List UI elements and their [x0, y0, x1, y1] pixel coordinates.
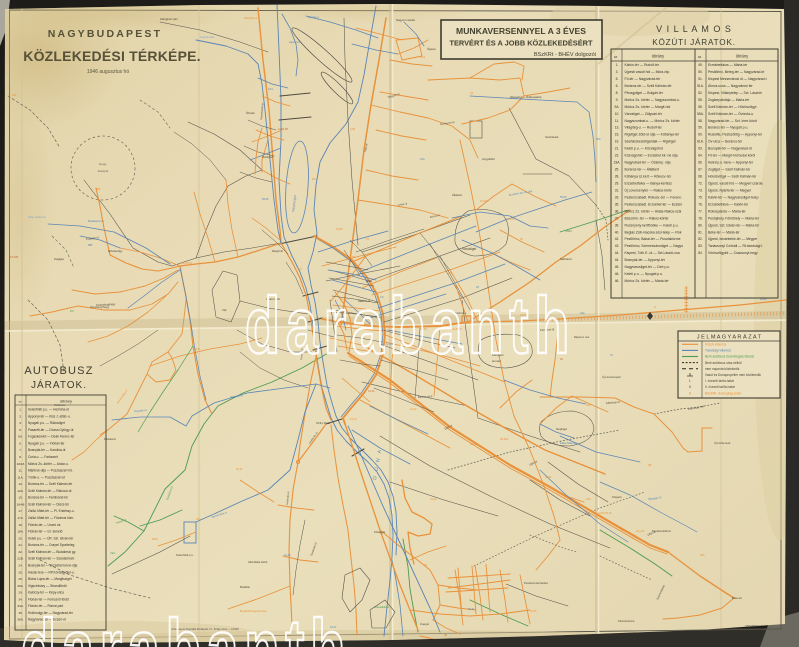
- svg-text:Új köztemető: Új köztemető: [714, 440, 731, 445]
- svg-text:25,25A: 25,25A: [480, 199, 488, 203]
- svg-text:Kálvin-tér — Rudolf-tér: Kálvin-tér — Rudolf-tér: [625, 63, 660, 67]
- svg-text:Vasút és Dunapropeller nem köz: Vasút és Dunapropeller nem közlekedik: [705, 373, 761, 377]
- svg-text:50A: 50A: [700, 553, 705, 557]
- svg-text:Flórián-tér — Izr. temető: Flórián-tér — Izr. temető: [28, 530, 63, 534]
- svg-text:Újpesti vasúti híd — Móra-rkp.: Újpesti vasúti híd — Móra-rkp.: [625, 69, 671, 74]
- svg-text:Kispest, Villanytelep — Szt. L: Kispest, Villanytelep — Szt. Lászlóh: [708, 91, 762, 95]
- svg-text:26.: 26.: [18, 577, 22, 581]
- svg-text:BSzKRt. viszonylag szám: BSzKRt. viszonylag szám: [705, 391, 742, 395]
- svg-text:AUTOBUSZ: AUTOBUSZ: [24, 365, 93, 377]
- svg-text:Újpest, Nyárfa-tér — Megyer: Újpest, Nyárfa-tér — Megyer: [708, 187, 752, 192]
- svg-text:Nyugati p.u. — Rákosliget: Nyugati p.u. — Rákosliget: [28, 421, 65, 425]
- svg-text:Közúti villamos: Közúti villamos: [705, 343, 727, 347]
- svg-text:Vám: Vám: [110, 551, 115, 555]
- svg-text:22.: 22.: [18, 550, 22, 554]
- svg-text:Flórián-tér — Forkoznő fürdő: Flórián-tér — Forkoznő fürdő: [28, 597, 69, 601]
- svg-text:Keleti p.u. — ÚR. Szt. István-: Keleti p.u. — ÚR. Szt. István-tér: [28, 535, 74, 540]
- svg-text:61A.: 61A.: [697, 140, 704, 144]
- svg-text:46.: 46.: [615, 272, 620, 276]
- svg-text:Hegy-: Hegy-: [99, 162, 107, 166]
- svg-text:40A: 40A: [196, 517, 201, 521]
- svg-text:3,55: 3,55: [350, 127, 356, 131]
- svg-text:Távolsági villamos: Távolsági villamos: [705, 349, 731, 353]
- svg-text:31,35: 31,35: [530, 609, 537, 613]
- svg-text:Újpest.: Újpest.: [427, 46, 437, 51]
- svg-text:20.: 20.: [18, 536, 22, 540]
- svg-text:V I L L A M O S: V I L L A M O S: [656, 24, 732, 34]
- svg-text:36.: 36.: [615, 209, 620, 213]
- svg-text:KÖZLEKEDÉSI TÉRKÉPE.: KÖZLEKEDÉSI TÉRKÉPE.: [23, 48, 200, 64]
- svg-text:23.: 23.: [615, 154, 620, 158]
- svg-text:6,66: 6,66: [350, 255, 356, 259]
- svg-text:18A.: 18A.: [17, 530, 24, 534]
- svg-text:Kelenföldi p.u. — Hermina-út: Kelenföldi p.u. — Hermina-út: [28, 408, 69, 412]
- svg-text:Álmos ucca — Nagyvárosi tér: Álmos ucca — Nagyvárosi tér: [708, 84, 754, 88]
- svg-text:19.: 19.: [615, 140, 620, 144]
- svg-text:11A.: 11A.: [17, 475, 23, 479]
- svg-text:Rudolfia, Pestszőlőig — Appony: Rudolfia, Pestszőlőig — Apponyi-tér: [708, 133, 763, 137]
- svg-text:5.: 5.: [616, 77, 619, 81]
- svg-text:Mártírok-útja — Pusztaszeri-hd: Mártírok-útja — Pusztaszeri-hd.: [28, 469, 73, 473]
- svg-text:18.: 18.: [18, 523, 22, 527]
- svg-text:3.: 3.: [19, 421, 22, 425]
- svg-text:Móricz Zs. körtér — Mária-tér: Móricz Zs. körtér — Mária-tér: [625, 279, 670, 283]
- svg-text:Mosoly-u.: Mosoly-u.: [308, 15, 320, 19]
- svg-text:Rajcsa A. tesi: Rajcsa A. tesi: [574, 336, 590, 339]
- svg-text:78.: 78.: [698, 216, 703, 220]
- svg-text:Curia-u. — Farkasrét: Curia-u. — Farkasrét: [28, 455, 58, 459]
- svg-text:Nyugati p.u. — Flórián-tér: Nyugati p.u. — Flórián-tér: [28, 441, 65, 445]
- svg-text:885: 885: [88, 243, 93, 247]
- svg-text:Aquincum: Aquincum: [289, 40, 301, 44]
- svg-text:Városliget — Zölgvári-tér: Városliget — Zölgvári-tér: [625, 112, 663, 116]
- svg-text:Böszörm.-tér — Rákos-körtér: Böszörm.-tér — Rákos-körtér: [625, 216, 670, 220]
- svg-text:10/16: 10/16: [17, 462, 25, 466]
- svg-text:55.: 55.: [698, 105, 703, 109]
- svg-text:Boráros-tér — Ferdinánd-tér: Boráros-tér — Ferdinánd-tér: [28, 496, 69, 500]
- svg-text:Vörösvölgyiút — Csacsonyi-hegy: Vörösvölgyiút — Csacsonyi-hegy: [708, 251, 758, 255]
- svg-text:67.: 67.: [698, 168, 703, 172]
- svg-text:33.: 33.: [615, 195, 620, 199]
- svg-text:Béke-tér — Mária-tér: Béke-tér — Mária-tér: [708, 230, 741, 234]
- svg-text:39.: 39.: [615, 223, 620, 227]
- svg-text:17A.: 17A.: [17, 516, 24, 520]
- svg-text:Flórián-tér: Flórián-tér: [262, 156, 274, 159]
- svg-text:Nagyvárad-tér — Szt. Imre-körú: Nagyvárad-tér — Szt. Imre-körút: [708, 119, 757, 123]
- svg-text:Fő-tér — Margit-híd budai körö: Fő-tér — Margit-híd budai köröl: [708, 154, 755, 158]
- svg-text:44A: 44A: [580, 311, 585, 315]
- svg-text:12A.: 12A.: [17, 489, 24, 493]
- svg-text:ÜBEV: ÜBEV: [565, 229, 572, 233]
- svg-text:darabanth: darabanth: [245, 281, 575, 371]
- svg-text:Beglás Zsili-macska sósi-telep: Beglás Zsili-macska sósi-telep — Rók: [625, 230, 682, 234]
- svg-text:Bent autóbusz üzemkiegészítéss: Bent autóbusz üzemkiegészítéssel: [705, 355, 754, 359]
- svg-text:9,10: 9,10: [420, 55, 426, 59]
- svg-text:II: II: [689, 385, 691, 389]
- svg-text:15.: 15.: [615, 133, 620, 137]
- svg-text:5A.: 5A.: [18, 435, 23, 439]
- svg-text:I.: I.: [689, 379, 691, 383]
- svg-text:55A: 55A: [596, 137, 601, 141]
- svg-text:Béke-tér: Béke-tér: [732, 596, 742, 600]
- svg-text:MS: MS: [312, 177, 316, 181]
- svg-text:Széll Kálmán-tér — Óvónőa-u.: Széll Kálmán-tér — Óvónőa-u.: [708, 111, 754, 116]
- svg-text:66.: 66.: [698, 161, 703, 165]
- svg-text:55,56: 55,56: [262, 197, 269, 201]
- svg-text:55,69: 55,69: [560, 195, 567, 199]
- svg-text:Móricz Zs. körtér — Aldás-Ráko: Móricz Zs. körtér — Aldás-Rákos-szál: [625, 209, 682, 213]
- svg-text:34.: 34.: [18, 597, 22, 601]
- svg-text:Kálvin-tér — Nagyvárosliget-te: Kálvin-tér — Nagyvárosliget-telep: [708, 195, 759, 199]
- svg-text:Zalka Máté-tér: Zalka Máté-tér: [560, 441, 577, 445]
- svg-text:9A.: 9A.: [615, 105, 620, 109]
- svg-text:Állatkert: Állatkert: [452, 193, 462, 197]
- svg-text:Kispest: Kispest: [612, 495, 622, 499]
- svg-text:Pestlőrinc, Szemesvárosliget —: Pestlőrinc, Szemesvárosliget — Nagys: [625, 244, 684, 248]
- svg-text:49.: 49.: [698, 63, 703, 67]
- svg-text:Újpest, Istvántelek-tér — Megy: Újpest, Istvántelek-tér — Megyer: [708, 236, 758, 241]
- svg-text:843: 843: [12, 93, 17, 97]
- svg-text:11,84,88: 11,84,88: [278, 127, 288, 131]
- svg-text:Boráros-tér — Széll Kálmán-tér: Boráros-tér — Széll Kálmán-tér: [28, 482, 73, 486]
- svg-text:2.: 2.: [19, 414, 22, 418]
- svg-text:Wesselnyi — Rákospalota: Wesselnyi — Rákospalota: [510, 95, 542, 99]
- svg-text:Hidegkuti vám: Hidegkuti vám: [160, 17, 178, 21]
- svg-text:Nagyszombat-u. — Móricz Zs. kö: Nagyszombat-u. — Móricz Zs. körtér: [625, 119, 681, 123]
- svg-text:3.: 3.: [616, 70, 619, 74]
- svg-text:Zsilkó Máté-tér — Fővárosi köm: Zsilkó Máté-tér — Fővárosi köm.: [28, 516, 74, 520]
- svg-text:23,13: 23,13: [350, 417, 357, 421]
- svg-text:Bosnyák-tér — Karolina-út: Bosnyák-tér — Karolina-út: [28, 448, 65, 452]
- svg-text:N8: N8: [648, 463, 652, 467]
- svg-text:44.: 44.: [615, 258, 620, 262]
- svg-text:Bosnyák-tér — Nagyvárad-út: Bosnyák-tér — Nagyvárad-út: [708, 147, 752, 151]
- svg-text:Boráros-tér — Széll Kálmán-tér: Boráros-tér — Széll Kálmán-tér: [625, 84, 673, 88]
- svg-text:83.: 83.: [698, 244, 703, 248]
- svg-text:26A.: 26A.: [17, 584, 24, 588]
- svg-text:11.: 11.: [615, 119, 619, 123]
- svg-text:Sashalom: Sashalom: [560, 257, 573, 261]
- svg-text:Újpest, vasúti híd — Megyeri c: Újpest, vasúti híd — Megyeri csárda: [708, 180, 763, 185]
- svg-text:8.: 8.: [616, 91, 619, 95]
- svg-text:Pesterszabadt. Rókusv.-tér — F: Pesterszabadt. Rókusv.-tér — Ferenc-: [625, 195, 683, 199]
- svg-text:15.: 15.: [18, 496, 22, 500]
- svg-text:nem naponta közlekedik: nem naponta közlekedik: [705, 367, 740, 371]
- svg-text:41,43: 41,43: [284, 553, 291, 557]
- svg-text:Bosnyák-tér — Apponyi-tér: Bosnyák-tér — Apponyi-tér: [625, 258, 666, 262]
- svg-text:sz.: sz.: [614, 55, 618, 59]
- svg-text:8.: 8.: [19, 455, 22, 459]
- svg-text:J E L M A G Y A R Á Z A T: J E L M A G Y A R Á Z A T: [697, 334, 762, 341]
- svg-text:63.: 63.: [698, 147, 703, 151]
- svg-text:5.: 5.: [19, 428, 22, 432]
- svg-text:31,42: 31,42: [410, 407, 417, 411]
- svg-text:Pestlőrinc, Bakai-tér — Puszta: Pestlőrinc, Bakai-tér — Pusztaközme: [625, 237, 681, 241]
- svg-text:58.: 58.: [698, 119, 703, 123]
- svg-text:MUNKAVERSENNYEL A 3 ÉVES: MUNKAVERSENNYEL A 3 ÉVES: [456, 26, 586, 36]
- svg-text:Széll Kálmán-tér — Rákóczi-út: Széll Kálmán-tér — Rákóczi-út: [28, 489, 72, 493]
- svg-text:1946 augusztus hó: 1946 augusztus hó: [87, 69, 129, 75]
- svg-text:Móricz Zs. körtér — Margit-híd: Móricz Zs. körtér — Margit-híd: [625, 105, 671, 109]
- svg-text:80.: 80.: [698, 223, 703, 227]
- svg-text:sz.: sz.: [698, 55, 702, 59]
- svg-text:Keleti p.u. — Nyugati p.u.: Keleti p.u. — Nyugati p.u.: [625, 272, 664, 276]
- svg-text:42.: 42.: [615, 237, 620, 241]
- svg-text:67,69: 67,69: [508, 217, 515, 221]
- svg-text:45.: 45.: [615, 265, 620, 269]
- svg-text:33,55: 33,55: [336, 227, 343, 231]
- svg-text:Istvántelek: Istvántelek: [545, 135, 559, 139]
- svg-text:68.: 68.: [698, 175, 703, 179]
- svg-text:Pesterszabadt. Erzsébet-tér —: Pesterszabadt. Erzsébet-tér — Eszten: [625, 202, 683, 206]
- svg-text:Városliget: Városliget: [462, 247, 476, 251]
- svg-text:Szép Juhászné: Szép Juhászné: [28, 215, 46, 219]
- svg-text:Boráros-tér — Állatkert: Boráros-tér — Állatkert: [625, 168, 660, 172]
- svg-text:Tanácsonyi Czírkáll — Rt-távol: Tanácsonyi Czírkáll — Rt-távolsági t: [708, 244, 762, 248]
- svg-text:7.: 7.: [19, 448, 22, 452]
- svg-text:Új Lóversenytér: Új Lóversenytér: [602, 375, 621, 379]
- svg-text:Pestlőrinc, Beteg-tér — Nagyvá: Pestlőrinc, Beteg-tér — Nagyvárad-té: [708, 70, 764, 74]
- svg-text:Angyalföld: Angyalföld: [482, 157, 495, 161]
- svg-text:16/46: 16/46: [17, 502, 25, 506]
- svg-text:Keleti p.u.-tává — Apponyi-tér: Keleti p.u.-tává — Apponyi-tér: [708, 161, 754, 165]
- svg-text:Vár: Vár: [222, 308, 227, 312]
- svg-text:JÁRATOK.: JÁRATOK.: [31, 378, 87, 391]
- svg-text:Horthy M-híd: Horthy M-híd: [316, 422, 330, 425]
- svg-text:Kelenföldi p.u.: Kelenföldi p.u.: [176, 553, 194, 557]
- svg-text:darabanth: darabanth: [21, 603, 351, 647]
- svg-text:40.: 40.: [615, 230, 620, 234]
- svg-text:Rozsnyóny kertfőnöke — Keleti: Rozsnyóny kertfőnöke — Keleti p.u.: [625, 223, 679, 227]
- svg-text:Óbuda: Óbuda: [246, 110, 255, 115]
- svg-text:Albertfalva kitérő: Albertfalva kitérő: [248, 560, 268, 564]
- svg-text:82.: 82.: [698, 237, 703, 241]
- svg-text:84.: 84.: [698, 251, 703, 255]
- svg-text:útirány: útirány: [60, 399, 72, 404]
- svg-text:25A: 25A: [448, 271, 453, 275]
- svg-text:BSzKRt - BHÉV dolgozói: BSzKRt - BHÉV dolgozói: [534, 51, 596, 58]
- svg-text:52,52A: 52,52A: [470, 442, 478, 446]
- svg-text:Keleti p.u. — Közvágóhíd: Keleti p.u. — Közvágóhíd: [625, 147, 663, 151]
- svg-text:8: 8: [689, 391, 691, 395]
- svg-text:24.: 24.: [18, 563, 22, 567]
- svg-text:Zugliget: Zugliget: [54, 257, 64, 261]
- svg-text:30,30A: 30,30A: [500, 437, 508, 441]
- svg-text:25.: 25.: [615, 168, 620, 172]
- svg-text:Móricz Zs. körtér — Nagyszomba: Móricz Zs. körtér — Nagyszombat-u.: [625, 98, 680, 102]
- svg-text:17.: 17.: [18, 509, 22, 513]
- svg-text:46.: 46.: [615, 279, 620, 283]
- svg-text:51A.: 51A.: [697, 84, 704, 88]
- svg-text:52,52B: 52,52B: [10, 255, 18, 259]
- svg-text:5560/8666: 5560/8666: [745, 624, 759, 628]
- svg-text:Népliget: Népliget: [556, 427, 567, 431]
- svg-text:Hűvösvölgy: Hűvösvölgy: [108, 249, 123, 253]
- svg-text:Pestszenterzsébet: Pestszenterzsébet: [524, 581, 548, 585]
- svg-text:I. övezeti tarifa-határ: I. övezeti tarifa-határ: [705, 379, 735, 383]
- svg-text:Fő-tér — Nagyvárad-tér: Fő-tér — Nagyvárad-tér: [625, 77, 662, 81]
- svg-text:50,52: 50,52: [545, 475, 552, 479]
- svg-text:9,11: 9,11: [268, 87, 273, 91]
- svg-text:Kőolajgyár: Kőolajgyár: [374, 531, 385, 534]
- svg-text:59.: 59.: [698, 126, 703, 130]
- svg-text:73.: 73.: [698, 188, 703, 192]
- svg-text:Szertárskezelőgárdák — Rigvlig: Szertárskezelőgárdák — Rigvliget: [625, 140, 676, 144]
- svg-text:13.: 13.: [615, 126, 620, 130]
- svg-text:76.: 76.: [698, 202, 703, 206]
- svg-text:55A.: 55A.: [697, 112, 704, 116]
- svg-text:36,31: 36,31: [468, 607, 475, 611]
- svg-text:72.: 72.: [698, 181, 703, 185]
- svg-text:Szabadkikötő: Szabadkikötő: [374, 606, 390, 609]
- svg-text:64.: 64.: [698, 154, 703, 158]
- svg-text:MáriaSmd.: MáriaSmd.: [244, 16, 258, 20]
- svg-text:Erzsébetfalva — Bánya-kertész: Erzsébetfalva — Bánya-kertész: [625, 181, 673, 185]
- svg-text:útirány: útirány: [736, 54, 749, 59]
- svg-text:29.: 29.: [615, 181, 620, 185]
- svg-text:9.: 9.: [616, 98, 619, 102]
- svg-text:22B.: 22B.: [17, 557, 24, 561]
- svg-text:G: G: [654, 305, 656, 309]
- svg-text:Új Lóversenytér — Rákos-kürtv.: Új Lóversenytér — Rákos-kürtv.: [625, 187, 673, 192]
- svg-text:6.: 6.: [616, 84, 619, 88]
- svg-text:KÖZÚTI JÁRATOK.: KÖZÚTI JÁRATOK.: [652, 37, 736, 47]
- svg-text:szentendre: szentendre: [200, 35, 215, 39]
- svg-text:1.: 1.: [19, 408, 22, 412]
- svg-text:5,9: 5,9: [298, 267, 302, 271]
- svg-text:sz.: sz.: [19, 400, 23, 404]
- svg-text:BHÖ: BHÖ: [152, 537, 158, 541]
- svg-text:Boráros-tér — Csepel Sporttele: Boráros-tér — Csepel Sportteleg.: [28, 543, 75, 547]
- svg-text:Nagyvárad-tér — Östemp. útja: Nagyvárad-tér — Östemp. útja: [625, 161, 671, 165]
- svg-text:Fogaskerekű — Deák Ferenc-tér: Fogaskerekű — Deák Ferenc-tér: [28, 435, 75, 439]
- svg-text:Széll Kálmán-tér — Szanatórium: Széll Kálmán-tér — Szanatórium: [28, 557, 75, 561]
- svg-text:Kispest Mezsevárosi út — Nagyv: Kispest Mezsevárosi út — Nagyvárad-t: [708, 77, 767, 81]
- svg-text:61,63: 61,63: [368, 389, 375, 393]
- svg-text:56,58,81: 56,58,81: [182, 261, 193, 265]
- svg-text:Közvágóhíd — Erzsébet kir.-né: Közvágóhíd — Erzsébet kir.-né útja: [625, 154, 678, 158]
- svg-text:Vigszínházy — Strandfürdő: Vigszínházy — Strandfürdő: [28, 584, 67, 588]
- svg-text:35.: 35.: [615, 202, 620, 206]
- svg-text:Kispest, Tóth E.-út — Szt.Lász: Kispest, Tóth E.-út — Szt.László-csa: [625, 251, 680, 255]
- svg-text:Rókospalota — Mária-tér: Rókospalota — Mária-tér: [708, 209, 747, 213]
- svg-text:60.: 60.: [698, 133, 703, 137]
- svg-text:77.: 77.: [698, 209, 703, 213]
- svg-text:útirány: útirány: [652, 54, 665, 59]
- svg-text:42,63,50,51: 42,63,50,51: [598, 511, 612, 515]
- svg-text:59,61: 59,61: [194, 347, 201, 351]
- svg-text:Csepel: Csepel: [420, 622, 429, 626]
- svg-text:50.: 50.: [698, 70, 703, 74]
- svg-text:Házak-tere — RP.Kövtelgyőtel-u: Házak-tere — RP.Kövtelgyőtel-u.: [28, 570, 75, 574]
- svg-text:55.: 55.: [698, 98, 703, 102]
- svg-text:Bosnyák-tér — Erzsébet kir.né-: Bosnyák-tér — Erzsébet kir.né-útja: [28, 563, 77, 567]
- svg-text:Erzsébetfalva — Kálvin-tér: Erzsébetfalva — Kálvin-tér: [708, 202, 749, 206]
- svg-text:Pasaréti-tér — Dózsa György-út: Pasaréti-tér — Dózsa György-út: [28, 428, 73, 432]
- svg-text:Apponyi-tér — Kiss J. altáb.-u: Apponyi-tér — Kiss J. altáb.-u.: [28, 414, 71, 418]
- svg-text:Öv-utca — Boráros-tér: Öv-utca — Boráros-tér: [708, 140, 743, 144]
- svg-text:Móricz Zs.-körtér — Andor-u.: Móricz Zs.-körtér — Andor-u.: [28, 462, 69, 466]
- svg-text:Boráros-tér — Nyugati p.u.: Boráros-tér — Nyugati p.u.: [708, 126, 748, 130]
- svg-text:10.: 10.: [615, 112, 620, 116]
- svg-text:Széll Kálmán-tér — Diósz-tér: Széll Kálmán-tér — Diósz-tér: [28, 502, 70, 506]
- svg-text:Rigvliget Zöld-út útja — Kőbán: Rigvliget Zöld-út útja — Kőbánya-tér: [625, 133, 681, 137]
- svg-text:34A: 34A: [586, 403, 591, 407]
- svg-text:21.: 21.: [18, 543, 22, 547]
- svg-text:23A.: 23A.: [614, 161, 621, 165]
- svg-text:52.: 52.: [698, 91, 703, 95]
- svg-text:Bent autóbusz utas nélkül: Bent autóbusz utas nélkül: [705, 361, 742, 365]
- svg-text:11.: 11.: [18, 469, 22, 473]
- svg-text:Bloha Lujza-tér — Margitsziget: Bloha Lujza-tér — Margitsziget: [28, 577, 72, 581]
- svg-text:28.: 28.: [615, 175, 620, 179]
- svg-text:Zugliget — Széll Kálmán-tér: Zugliget — Széll Kálmán-tér: [708, 168, 751, 172]
- svg-text:1.: 1.: [616, 63, 619, 67]
- svg-text:Flórián-tér — Uromi vá.: Flórián-tér — Uromi vá.: [28, 523, 61, 527]
- svg-text:Hűvösvölgyi — Széll Kálmán-tér: Hűvösvölgyi — Széll Kálmán-tér: [708, 175, 757, 179]
- svg-text:Pénzgyliget — Bolgári-tér: Pénzgyliget — Bolgári-tér: [625, 91, 664, 95]
- svg-text:25.: 25.: [18, 570, 22, 574]
- svg-text:Kőbánya sz.kert — Rókusv.-tér: Kőbánya sz.kert — Rókusv.-tér: [625, 175, 673, 179]
- svg-text:Budafok: Budafok: [240, 585, 251, 589]
- svg-text:42A: 42A: [586, 497, 591, 501]
- svg-text:Zsilkó Máté-tér — Pl. Endéssy-: Zsilkó Máté-tér — Pl. Endéssy-u.: [28, 509, 75, 513]
- svg-text:37.: 37.: [615, 216, 620, 220]
- svg-text:838: 838: [96, 187, 101, 191]
- svg-text:21.: 21.: [615, 147, 620, 151]
- svg-text:44.: 44.: [615, 251, 620, 255]
- svg-text:23,24: 23,24: [430, 497, 437, 501]
- svg-text:29.: 29.: [18, 591, 22, 595]
- svg-text:40,41: 40,41: [236, 467, 243, 471]
- svg-text:Pestújhely, Főműhely — Mária-t: Pestújhely, Főműhely — Mária-tér: [708, 216, 760, 220]
- svg-text:Margit-híd: Margit-híd: [272, 250, 283, 253]
- svg-text:75.: 75.: [698, 195, 703, 199]
- svg-text:31.: 31.: [615, 188, 620, 192]
- svg-text:12.: 12.: [18, 482, 22, 486]
- svg-text:Zugkerpalotája — Mária-tér: Zugkerpalotája — Mária-tér: [708, 98, 750, 102]
- svg-text:Széll Kálmán-tér — Hűvösvölgyi: Széll Kálmán-tér — Hűvösvölgyi: [708, 105, 757, 109]
- svg-text:3A: 3A: [470, 91, 473, 95]
- svg-text:Nagyvárosliget-tér — Deb p.u.: Nagyvárosliget-tér — Deb p.u.: [625, 265, 671, 269]
- svg-text:Széll Kálmán-tér — Budakeszi g: Széll Kálmán-tér — Budakeszi gy.: [28, 550, 76, 554]
- svg-text:81.: 81.: [698, 230, 703, 234]
- svg-text:középút: középút: [98, 169, 109, 173]
- svg-text:Újpest, Szt. István-tér — Mári: Újpest, Szt. István-tér — Mária-tér: [708, 222, 760, 227]
- svg-text:Török-u. — Pusztaszeri-út: Török-u. — Pusztaszeri-út: [28, 475, 65, 479]
- svg-text:43.: 43.: [615, 244, 620, 248]
- svg-text:6.: 6.: [19, 441, 22, 445]
- svg-text:41 p33: 41 p33: [636, 529, 644, 533]
- svg-text:Világítég-u. — Rudolf-tér: Világítég-u. — Rudolf-tér: [625, 126, 663, 130]
- svg-text:Budakeszi-út: Budakeszi-út: [88, 219, 104, 223]
- svg-text:TERVÉRT ÉS A JOBB KÖZLEKEDÉSÉR: TERVÉRT ÉS A JOBB KÖZLEKEDÉSÉRT: [449, 39, 593, 48]
- svg-text:Pestszentimre: Pestszentimre: [618, 619, 635, 623]
- svg-text:Kalócsy-tér — Képy-ulica: Kalócsy-tér — Képy-ulica: [28, 591, 64, 595]
- svg-text:Nagyeri csárda: Nagyeri csárda: [396, 18, 415, 22]
- svg-text:10A: 10A: [420, 157, 425, 161]
- svg-text:NAGYBUDAPEST: NAGYBUDAPEST: [48, 28, 163, 40]
- svg-text:Erzsébetfalva — Mária-tér: Erzsébetfalva — Mária-tér: [708, 63, 748, 67]
- svg-text:II. övezeti tarifa-határ: II. övezeti tarifa-határ: [705, 385, 736, 389]
- svg-text:51.: 51.: [698, 77, 703, 81]
